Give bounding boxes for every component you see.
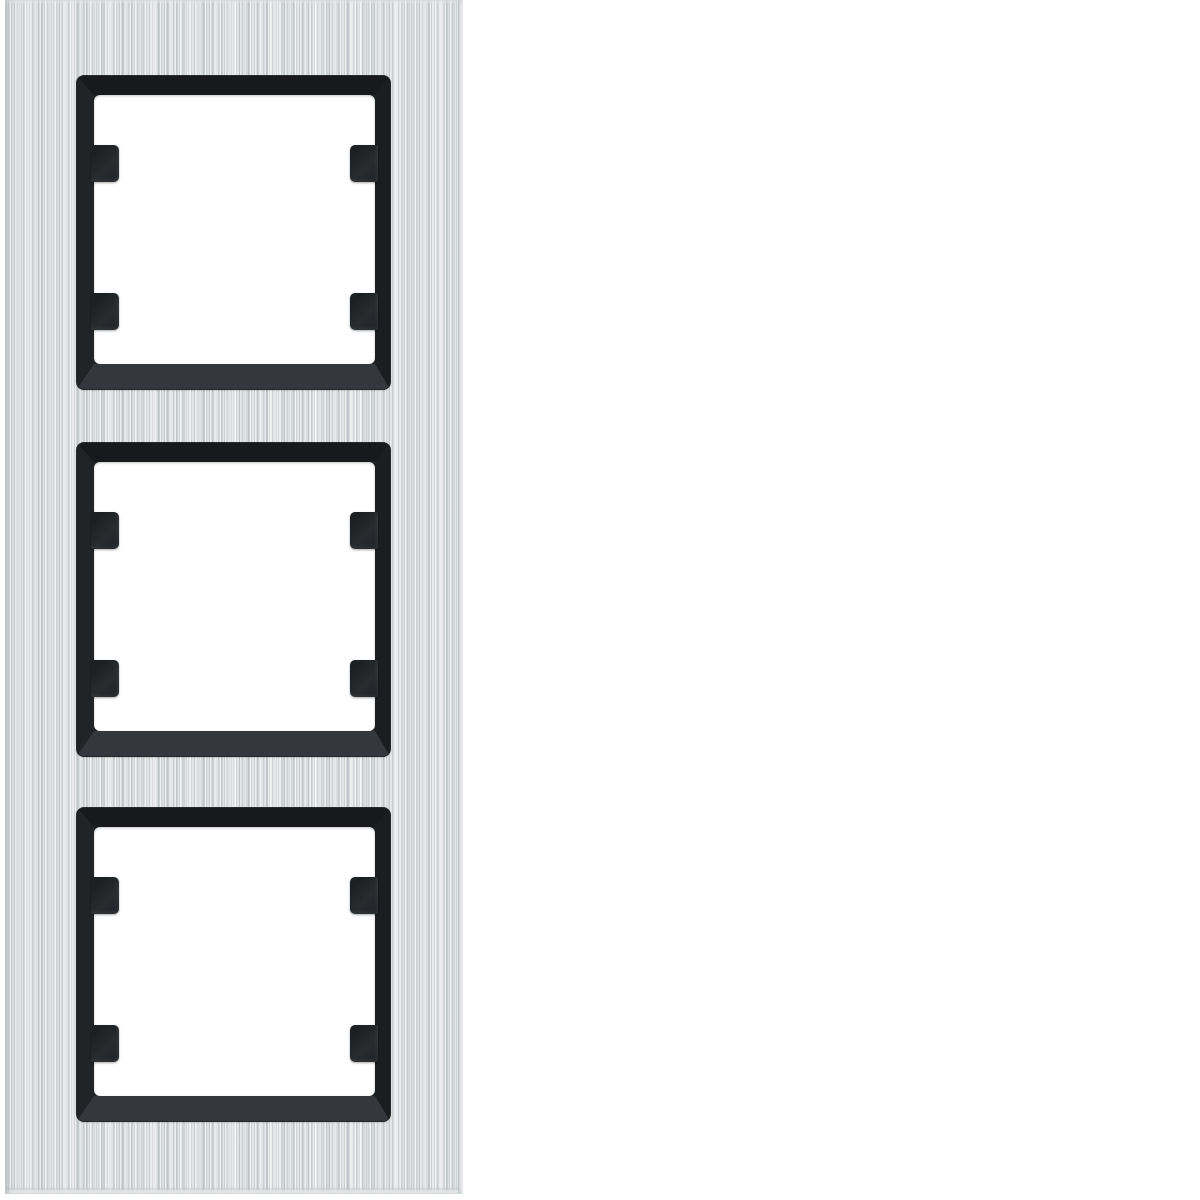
switch-opening-module-top bbox=[77, 76, 390, 389]
retaining-clip-bottom-right bbox=[350, 660, 378, 697]
switch-opening-module-bottom bbox=[77, 808, 390, 1121]
retaining-clip-bottom-left bbox=[91, 1025, 119, 1062]
retaining-clip-top-left bbox=[91, 877, 119, 914]
retaining-clip-bottom-right bbox=[350, 293, 378, 330]
retaining-clip-top-right bbox=[350, 877, 378, 914]
retaining-clip-top-right bbox=[350, 512, 378, 549]
module-window-opening bbox=[94, 462, 375, 731]
module-window-opening bbox=[94, 827, 375, 1096]
retaining-clip-top-left bbox=[91, 512, 119, 549]
retaining-clip-top-right bbox=[350, 145, 378, 182]
module-window-opening bbox=[94, 95, 375, 364]
switch-opening-module-middle bbox=[77, 443, 390, 756]
product-photo bbox=[0, 0, 1200, 1200]
retaining-clip-top-left bbox=[91, 145, 119, 182]
retaining-clip-bottom-left bbox=[91, 660, 119, 697]
cover-frame-plate bbox=[5, 0, 463, 1194]
retaining-clip-bottom-left bbox=[91, 293, 119, 330]
retaining-clip-bottom-right bbox=[350, 1025, 378, 1062]
